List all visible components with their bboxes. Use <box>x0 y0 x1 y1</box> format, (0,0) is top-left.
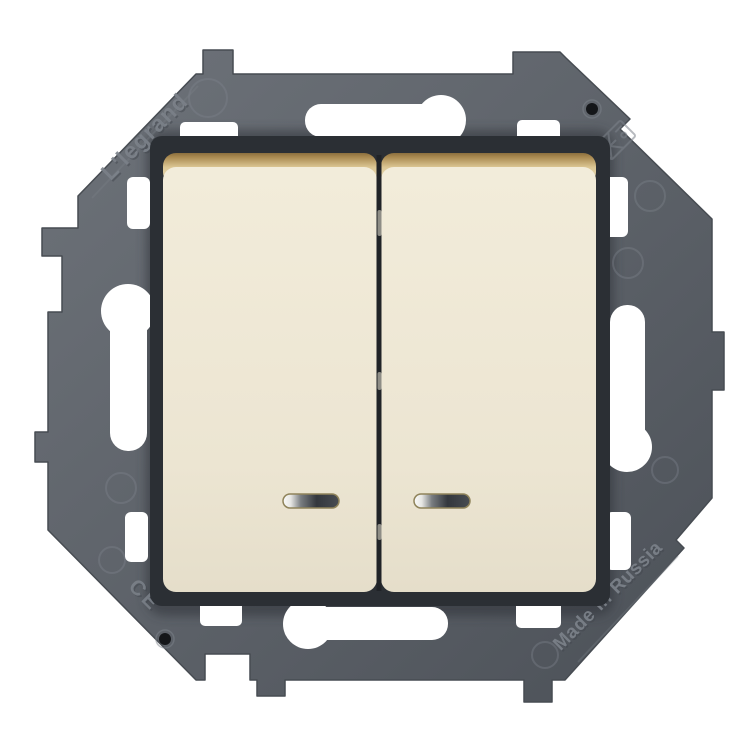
product-image: L'legrand L'legrand Made in Russia Made … <box>0 0 756 756</box>
seam-glint <box>378 210 382 236</box>
seam-glint <box>378 524 382 540</box>
indicator-lens-right <box>414 494 470 508</box>
product-photo-stage: L'legrand L'legrand Made in Russia Made … <box>0 0 756 756</box>
rocker-right <box>381 153 596 592</box>
rocker-left <box>163 153 377 592</box>
cutout-slot <box>125 512 148 562</box>
screw-hole <box>586 103 598 115</box>
rocker-left-face <box>163 167 377 592</box>
seam-glint <box>378 372 382 390</box>
screw-hole <box>159 633 171 645</box>
rocker-right-face <box>381 167 596 592</box>
rocker-switch <box>150 136 610 606</box>
cutout-slot <box>127 177 150 229</box>
indicator-lens-left <box>283 494 339 508</box>
